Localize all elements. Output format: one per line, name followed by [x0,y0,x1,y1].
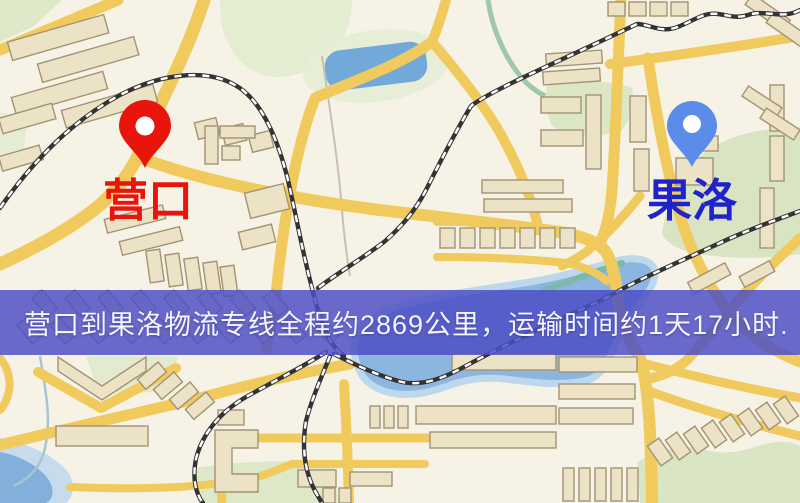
route-info-text: 营口到果洛物流专线全程约2869公里，运输时间约1天17小时. [24,303,789,342]
destination-pin-hole [683,115,701,133]
map-canvas[interactable]: 营口 果洛 [0,0,800,503]
route-info-banner: 营口到果洛物流专线全程约2869公里，运输时间约1天17小时. [0,290,800,355]
origin-label: 营口 [103,175,193,226]
destination-label: 果洛 [647,175,738,226]
map-screenshot: 营口 果洛 营口到果洛物流专线全程约2869公里，运输时间约1天17小时. [0,0,800,503]
origin-pin-hole [136,117,155,136]
